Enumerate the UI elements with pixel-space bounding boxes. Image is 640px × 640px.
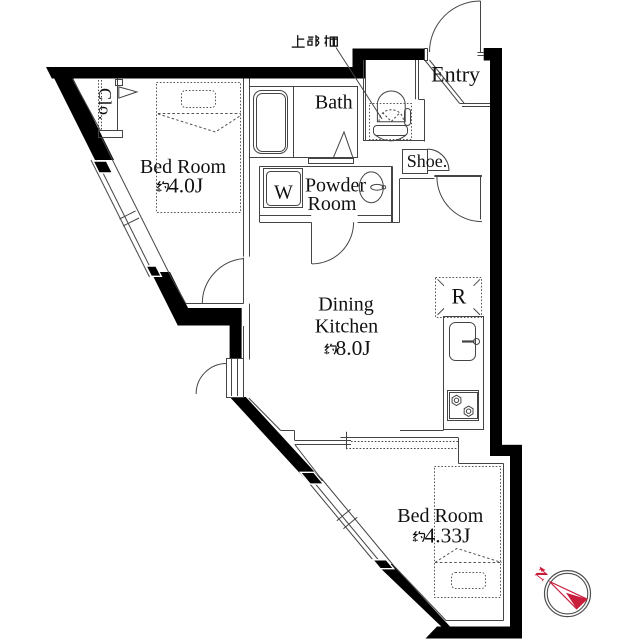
svg-text:Dining: Dining bbox=[318, 294, 374, 316]
svg-text:Shoe.: Shoe. bbox=[407, 151, 448, 171]
svg-text:R: R bbox=[451, 284, 466, 309]
svg-text:Bath: Bath bbox=[315, 92, 353, 114]
svg-text:4.33J: 4.33J bbox=[425, 524, 471, 548]
svg-text:Kitchen: Kitchen bbox=[315, 316, 378, 338]
svg-text:4.0J: 4.0J bbox=[168, 174, 203, 198]
svg-text:Clo.: Clo. bbox=[95, 88, 115, 121]
svg-text:8.0J: 8.0J bbox=[336, 336, 371, 360]
svg-text:Entry: Entry bbox=[431, 62, 480, 87]
svg-text:W: W bbox=[274, 182, 293, 204]
svg-text:Room: Room bbox=[308, 193, 357, 215]
